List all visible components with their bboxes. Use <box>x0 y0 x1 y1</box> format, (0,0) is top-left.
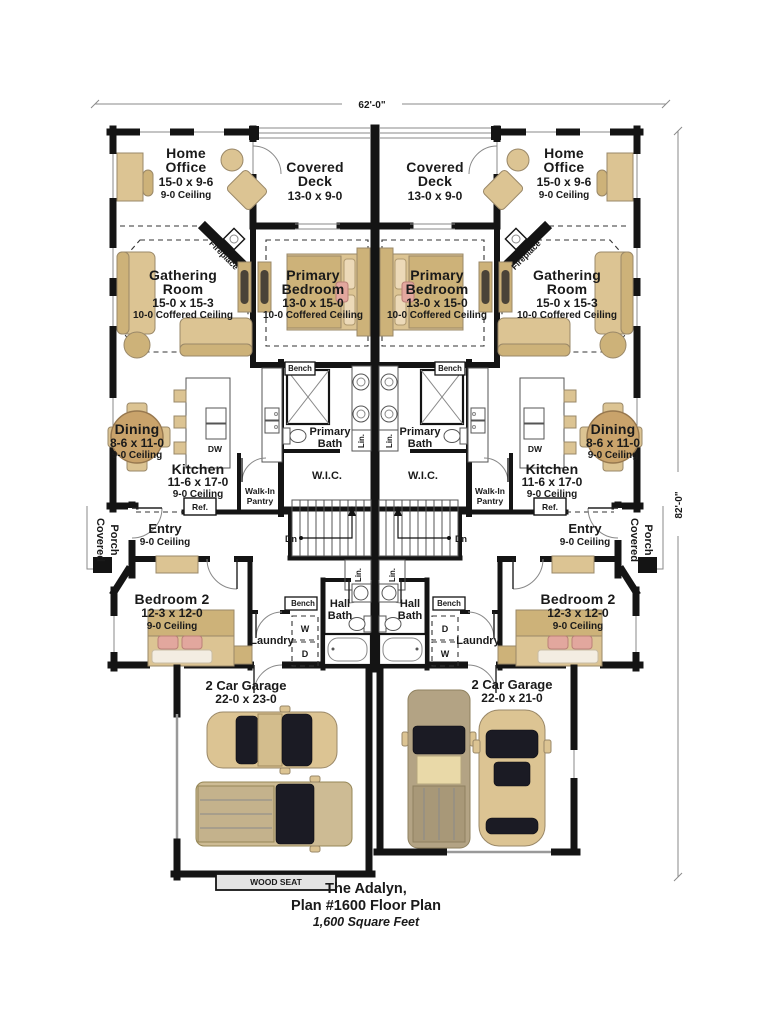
home-office-right-dims: 15-0 x 9-6 <box>537 175 592 189</box>
covered-porch-left-label: Porch <box>108 524 120 555</box>
side-table <box>124 332 150 358</box>
dishwasher-label: DW <box>208 444 223 454</box>
windshield <box>282 714 312 766</box>
window <box>109 616 119 652</box>
bedroom2-left-ceiling: 9-0 Ceiling <box>147 621 198 632</box>
kitchen-right-ceiling: 9-0 Ceiling <box>527 489 578 500</box>
washer-label: W <box>301 624 310 634</box>
pillow <box>182 636 202 649</box>
nightstand <box>234 646 252 664</box>
stool <box>564 390 576 402</box>
covered-deck-left-dims: 13-0 x 9-0 <box>288 189 343 203</box>
sink <box>524 408 544 423</box>
stool <box>174 416 186 428</box>
bench-label: Bench <box>437 599 461 608</box>
home-office-left-ceiling: 9-0 Ceiling <box>161 190 212 201</box>
cab <box>417 756 461 784</box>
covered-deck-right-label: Deck <box>418 173 452 189</box>
lounge-chair <box>226 169 268 211</box>
primary-bath-right-label: Bath <box>408 438 433 450</box>
dryer-label: D <box>442 624 449 634</box>
kitchen-left-dims: 11-6 x 17-0 <box>168 475 229 489</box>
primary-bedroom-left-dims: 13-0 x 15-0 <box>282 296 344 310</box>
rear-window <box>486 818 538 834</box>
gathering-left-dims: 15-0 x 15-3 <box>152 296 214 310</box>
height-dimension-label: 82'-0" <box>674 491 685 518</box>
covered-porch-left-label: Covered <box>94 518 106 562</box>
dining-left-ceiling: 9-0 Ceiling <box>112 450 163 461</box>
sunroof <box>494 762 530 786</box>
wic-left-label: W.I.C. <box>312 470 342 482</box>
rear-window <box>236 716 258 764</box>
bedroom2-right-label: Bedroom 2 <box>541 591 616 607</box>
hall-bath-left-label: Hall <box>330 598 350 610</box>
headboard <box>357 248 370 336</box>
plan-title: The Adalyn, <box>325 881 407 897</box>
entry-right-ceiling: 9-0 Ceiling <box>560 537 611 548</box>
hall-bath-left-label: Bath <box>328 610 353 622</box>
primary-bedroom-right-label: Bedroom <box>406 281 469 297</box>
washer-label: W <box>441 649 450 659</box>
dimension-right: 82'-0" <box>670 127 686 881</box>
dining-right-ceiling: 9-0 Ceiling <box>588 450 639 461</box>
dimension-top: 62'-0" <box>91 96 670 111</box>
sheet <box>152 650 212 663</box>
refrigerator-label: Ref. <box>192 502 208 512</box>
gathering-right-ceiling: 10-0 Coffered Ceiling <box>517 310 617 321</box>
desk <box>607 153 633 201</box>
entry-right-label: Entry <box>568 521 602 536</box>
kitchen-right-dims: 11-6 x 17-0 <box>522 475 583 489</box>
floor-plan-page: 62'-0" 82'-0" <box>0 0 777 1024</box>
entry-left-label: Entry <box>148 521 182 536</box>
suv-car <box>473 710 551 846</box>
plan-number: Plan #1600 Floor Plan <box>291 898 441 914</box>
garage-left-label: 2 Car Garage <box>206 678 287 693</box>
stairs-down-label: Dn <box>285 534 297 544</box>
hall-bath-left <box>256 580 371 665</box>
linen-label: Lin. <box>388 568 397 582</box>
windshield <box>413 726 465 754</box>
stairs-down-label: Dn <box>455 534 467 544</box>
bedroom2-right-ceiling: 9-0 Ceiling <box>553 621 604 632</box>
windshield <box>486 730 538 758</box>
entry-left-ceiling: 9-0 Ceiling <box>140 537 191 548</box>
side-table <box>600 332 626 358</box>
refrigerator-label: Ref. <box>542 502 558 512</box>
nightstand <box>498 646 516 664</box>
floor-plan-drawing: 62'-0" 82'-0" <box>0 0 777 1024</box>
window <box>140 127 170 137</box>
dining-left-dims: 8-6 x 11-0 <box>110 436 164 450</box>
pillow <box>158 636 178 649</box>
sedan-car <box>207 706 337 774</box>
primary-bath-right-label: Primary <box>400 426 442 438</box>
garage-left-dims: 22-0 x 23-0 <box>215 692 277 706</box>
toilet <box>460 428 467 444</box>
pillow <box>548 636 568 649</box>
round-table <box>221 149 243 171</box>
range <box>471 408 485 420</box>
desk-chair <box>143 170 153 196</box>
bedroom2-right-dims: 12-3 x 12-0 <box>547 606 609 620</box>
desk <box>117 153 143 201</box>
bench <box>156 556 198 573</box>
width-dimension-label: 62'-0" <box>358 100 385 111</box>
primary-bedroom-right-dims: 13-0 x 15-0 <box>406 296 468 310</box>
laundry-right-label: Laundry <box>456 635 500 647</box>
primary-bedroom-left-ceiling: 10-0 Coffered Ceiling <box>263 310 363 321</box>
covered-deck-left-label: Deck <box>298 173 332 189</box>
kitchen-left-ceiling: 9-0 Ceiling <box>173 489 224 500</box>
home-office-right-label: Office <box>544 159 585 175</box>
home-office-right-ceiling: 9-0 Ceiling <box>539 190 590 201</box>
garage-right-label: 2 Car Garage <box>472 677 553 692</box>
linen-label: Lin. <box>357 434 366 448</box>
home-office-left-label: Office <box>166 159 207 175</box>
pantry-left-label: Walk-In <box>245 486 275 496</box>
window <box>526 127 556 137</box>
plan-square-feet: 1,600 Square Feet <box>313 915 420 929</box>
windshield <box>276 784 314 844</box>
pantry-right-label: Walk-In <box>475 486 505 496</box>
pillow <box>572 636 592 649</box>
bench-label: Bench <box>438 364 462 373</box>
window <box>569 750 579 778</box>
primary-bedroom-left-label: Bedroom <box>282 281 345 297</box>
window <box>580 127 610 137</box>
window <box>631 616 641 652</box>
home-office-left-dims: 15-0 x 9-6 <box>159 175 214 189</box>
bathtub <box>324 634 371 665</box>
gathering-left-label: Room <box>163 281 203 297</box>
pickup-truck-right <box>402 690 476 848</box>
pickup-truck-left <box>196 776 352 852</box>
gathering-right-dims: 15-0 x 15-3 <box>536 296 598 310</box>
desk-chair <box>597 170 607 196</box>
linen-label: Lin. <box>354 568 363 582</box>
dishwasher-label: DW <box>528 444 543 454</box>
lounge-chair <box>482 169 524 211</box>
pantry-right-label: Pantry <box>477 496 504 506</box>
covered-porch-right-label: Covered <box>628 518 640 562</box>
stool <box>564 442 576 454</box>
range <box>265 408 279 420</box>
laundry-left-label: Laundry <box>250 635 294 647</box>
wood-seat-label: WOOD SEAT <box>250 877 303 887</box>
covered-porch-right-label: Porch <box>642 524 654 555</box>
dining-right-dims: 8-6 x 11-0 <box>586 436 640 450</box>
dining-right-label: Dining <box>591 421 636 437</box>
hall-bath-right-label: Bath <box>398 610 423 622</box>
primary-bath-left-label: Primary <box>310 426 352 438</box>
bench-label: Bench <box>288 364 312 373</box>
hall-bath-right-label: Hall <box>400 598 420 610</box>
round-table <box>507 149 529 171</box>
dining-left-label: Dining <box>115 421 160 437</box>
dryer-label: D <box>302 649 309 659</box>
window <box>194 127 224 137</box>
pantry-left-label: Pantry <box>247 496 274 506</box>
covered-deck-right-dims: 13-0 x 9-0 <box>408 189 463 203</box>
gathering-right-label: Room <box>547 281 587 297</box>
bedroom2-left-label: Bedroom 2 <box>135 591 210 607</box>
stool <box>564 416 576 428</box>
garage-right-dims: 22-0 x 21-0 <box>481 691 543 705</box>
sheet <box>538 650 598 663</box>
sink <box>206 408 226 423</box>
linen-label: Lin. <box>385 434 394 448</box>
primary-bath-left-label: Bath <box>318 438 343 450</box>
bench <box>552 556 594 573</box>
primary-bedroom-right-ceiling: 10-0 Coffered Ceiling <box>387 310 487 321</box>
bathtub <box>379 634 426 665</box>
wic-right-label: W.I.C. <box>408 470 438 482</box>
headboard <box>380 248 393 336</box>
bench-label: Bench <box>291 599 315 608</box>
stool <box>174 442 186 454</box>
toilet <box>283 428 290 444</box>
roof <box>258 714 282 766</box>
gathering-left-ceiling: 10-0 Coffered Ceiling <box>133 310 233 321</box>
stool <box>174 390 186 402</box>
hall-bath-right <box>379 580 494 665</box>
bedroom2-left-dims: 12-3 x 12-0 <box>141 606 203 620</box>
